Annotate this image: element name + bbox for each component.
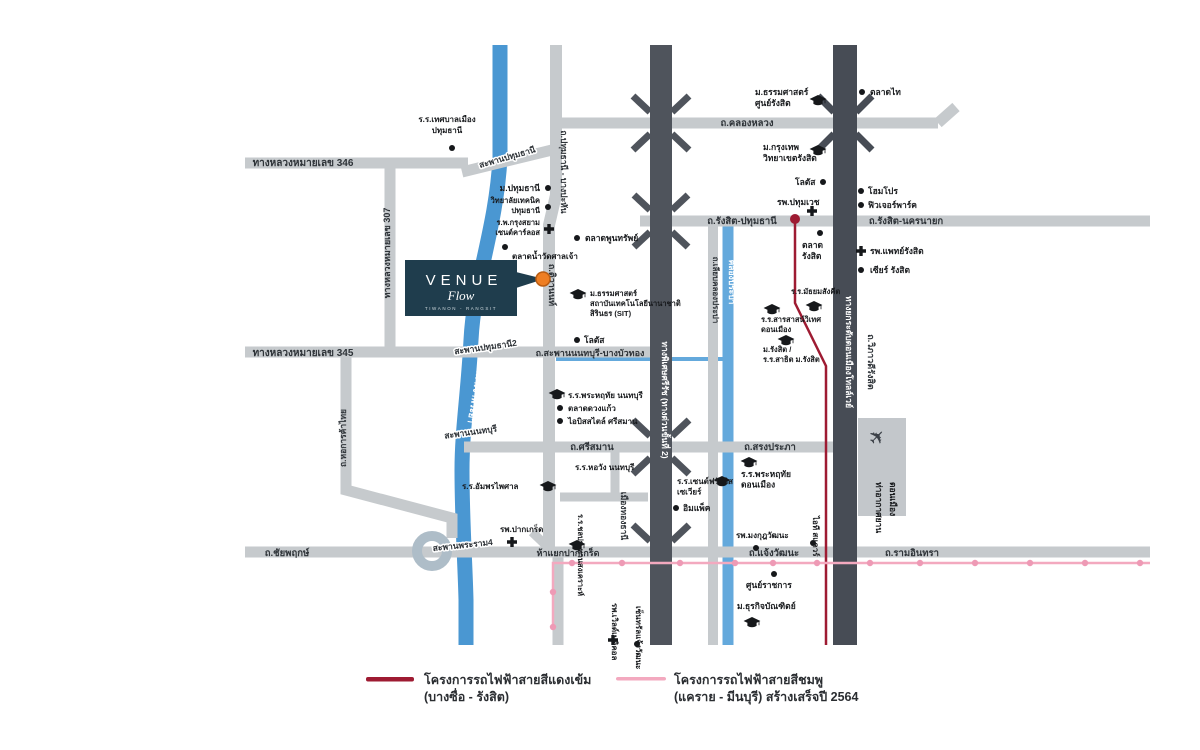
school-cap-icon <box>779 335 794 344</box>
landmark-label: ม.รังสิต / <box>763 345 792 354</box>
pink-line-station-dot <box>550 589 556 595</box>
landmark-label: ร.ร.ชลประทานสงเคราะห์ <box>576 514 585 596</box>
poi-dot-icon <box>817 230 823 236</box>
poi-dot-icon <box>858 267 864 273</box>
road-label: ถ.ติวานนท์ <box>547 264 558 306</box>
pink-line-station-dot <box>1027 560 1033 566</box>
poi-dot-icon <box>634 641 640 647</box>
landmark-label: ม.ธรรมศาสตร์ <box>755 87 809 97</box>
road-label: ถ.ชัยพฤกษ์ <box>265 547 310 559</box>
landmark-label: ปทุมธานี <box>432 125 463 136</box>
pink-line-station-dot <box>677 560 683 566</box>
road-label: คลองประปา <box>727 260 737 305</box>
road-label: ถ.ปทุมธานี - บางปะหัน <box>558 130 569 213</box>
pink-line-station-dot <box>867 560 873 566</box>
landmark-label: ร.ร.หอวัง นนทบุรี <box>575 462 635 473</box>
pink-line-station-dot <box>917 560 923 566</box>
legend: โครงการรถไฟฟ้าสายสีแดงเข้ม (บางซื่อ - รั… <box>366 672 858 705</box>
landmark-label: ตลาดน้ำวัดศาลเจ้า <box>512 250 578 261</box>
landmark-label: เซียร์ รังสิต <box>870 265 910 275</box>
landmark-label: ไอที สแควร์ <box>811 515 821 557</box>
landmark-label: โลตัส <box>794 177 816 187</box>
pink-line-station-dot <box>770 560 776 566</box>
pink-line-station-dot <box>1137 560 1143 566</box>
road-label: ถ.คลองหลวง <box>721 118 774 129</box>
poi-dot-icon <box>820 179 826 185</box>
landmark-label: ไอบิสสไตล์ ศรีสมาน <box>567 416 638 426</box>
pink-line-station-dot <box>550 624 556 630</box>
landmark-label: วิทยาเขตรังสิต <box>763 153 817 163</box>
landmark-label: ร.ร.เทศบาลเมือง <box>418 114 475 124</box>
landmark-label: โลตัส <box>583 335 605 345</box>
poi-dot-icon <box>557 418 563 424</box>
road-label: ถ.วิภาวดีรังสิต <box>866 334 876 390</box>
poi-dot-icon <box>557 405 563 411</box>
legend-pink-line-sublabel: (แคราย - มีนบุรี) สร้างเสร็จปี 2564 <box>674 689 858 705</box>
legend-pink-line-swatch <box>616 677 666 681</box>
poi-dot-icon <box>858 188 864 194</box>
landmark-label: ร.ร.อัมพรไพศาล <box>462 481 519 491</box>
road-label: ทางหลวงหมายเลข 307 <box>382 208 392 299</box>
landmark-label: วิทยาลัยเทคนิค <box>490 196 540 205</box>
landmark-label: ม.ธรรมศาสตร์ <box>590 289 638 298</box>
landmark-label: ม.ธุรกิจบัณฑิตย์ <box>737 601 796 612</box>
project-location-pin <box>536 272 550 286</box>
landmark-label: ศูนย์ราชการ <box>746 580 792 591</box>
poi-dot-icon <box>673 505 679 511</box>
landmark-label: ปทุมธานี <box>511 206 540 215</box>
pink-line-station-dot <box>814 560 820 566</box>
landmark-label: ม.ปทุมธานี <box>500 183 541 194</box>
poi-dot-icon <box>545 204 551 210</box>
project-subname: Flow <box>447 288 475 303</box>
road-label: ทางพิเศษศรีรัช (ทางด่วนขั้นที่ 2) <box>660 341 672 458</box>
project-marker: VENUE Flow TIWANON - RANGSIT <box>405 260 550 316</box>
landmark-label: ตลาดพูนทรัพย์ <box>585 233 638 244</box>
school-cap-icon <box>742 457 757 466</box>
landmark-label: เซ็นทรัลแจ้งวัฒนะ <box>634 606 645 669</box>
landmark-label: ท่าอากาศยาน <box>874 482 884 533</box>
pink-line-station-dot <box>972 560 978 566</box>
poi-dot-icon <box>574 235 580 241</box>
landmark-label: ร.ร.สาธิต ม.รังสิต <box>763 355 820 364</box>
road-label: ถ.รังสิต-ปทุมธานี <box>707 215 777 227</box>
landmark-label: รพ.แพทย์รังสิต <box>870 246 924 256</box>
landmark-label: โฮมโปร <box>867 186 898 196</box>
school-cap-icon <box>807 301 822 310</box>
hospital-cross-icon <box>856 246 866 256</box>
poi-dot-icon <box>502 244 508 250</box>
poi-dot-icon <box>810 540 816 546</box>
landmark-label: ร.ร.มัธยมสังคีต <box>791 287 840 296</box>
project-tagline: TIWANON - RANGSIT <box>425 306 497 311</box>
road-label: ทางหลวงหมายเลข 345 <box>253 348 354 359</box>
road-label: ห้าแยกปากเกร็ด <box>537 546 600 558</box>
legend-red-line-swatch <box>366 677 414 682</box>
poi-dot-icon <box>859 89 865 95</box>
landmark-label: ม.กรุงเทพ <box>763 142 799 153</box>
school-cap-icon <box>571 289 586 298</box>
landmark-label: ร.พ.กรุงสยาม <box>497 218 541 227</box>
map-screenshot: ทางหลวงหมายเลข 346สะพานปทุมธานีถ.ปทุมธาน… <box>0 0 1200 750</box>
landmark-label: สิรินธร (SIT) <box>590 309 632 318</box>
landmark-label: ร.ร.พระหฤทัย <box>741 469 791 479</box>
landmark-label: เซนต์คาร์ลอส <box>495 228 540 237</box>
road-khlong-luang-tail <box>938 107 956 123</box>
school-cap-icon <box>745 617 760 626</box>
poi-dot-icon <box>753 545 759 551</box>
landmark-label: ฟิวเจอร์พาร์ค <box>868 200 917 210</box>
project-name: VENUE <box>426 272 503 289</box>
pink-line-station-dot <box>1082 560 1088 566</box>
landmark-label: สถาบันเทคโนโลยีนานาชาติ <box>590 298 681 308</box>
red-line-terminus-dot <box>790 214 800 224</box>
school-cap-icon <box>765 304 780 313</box>
landmark-label: ร.ร.พระหฤทัย นนทบุรี <box>568 390 643 401</box>
landmark-label: รพ.เวิลด์เมดิคอล <box>610 603 620 660</box>
landmark-label: เซเวียร์ <box>677 487 702 497</box>
red-line-route <box>795 220 826 645</box>
road-label: ถ.ศรีสมาน <box>570 441 614 453</box>
landmark-label: ศูนย์รังสิต <box>755 98 791 109</box>
landmark-label: ดอนเมือง <box>741 480 775 490</box>
location-map: ทางหลวงหมายเลข 346สะพานปทุมธานีถ.ปทุมธาน… <box>0 0 1200 750</box>
legend-pink-line-label: โครงการรถไฟฟ้าสายสีชมพู <box>673 672 823 688</box>
pink-line-station-dot <box>619 560 625 566</box>
landmark-label: รพ.ปากเกร็ด <box>500 523 543 534</box>
road-hokarnkha-thai <box>346 352 452 538</box>
poi-dot-icon <box>858 202 864 208</box>
landmark-label: อิมแพ็ค <box>683 501 711 513</box>
road-label: สะพานนนทบุรี <box>444 423 499 441</box>
poi-dot-icon <box>771 571 777 577</box>
landmark-label: ดอนเมือง <box>888 482 898 516</box>
landmark-label: ดอนเมือง <box>761 325 792 334</box>
pink-line-station-dot <box>732 560 738 566</box>
hospital-cross-icon <box>807 206 817 216</box>
road-label: ถ.เลียบคลองประปา <box>711 257 721 324</box>
road-label: ถ.สะพานนนทบุรี-บางบัวทอง <box>536 348 645 359</box>
hospital-cross-icon <box>507 537 517 547</box>
road-label: เมืองทองธานี <box>619 492 629 541</box>
landmark-label: ร.ร.สารสาสน์วิเทศ <box>761 315 821 324</box>
landmark-label: ตลาดดวงแก้ว <box>568 403 616 413</box>
poi-dot-icon <box>574 337 580 343</box>
road-label: ถ.รังสิต-นครนายก <box>869 216 944 227</box>
landmark-label: ตลาดไท <box>870 87 901 97</box>
landmark-label: รังสิต <box>802 251 822 261</box>
legend-red-line-sublabel: (บางซื่อ - รังสิต) <box>424 688 509 704</box>
landmark-label: ตลาด <box>802 240 824 250</box>
road-label: ถ.รามอินทรา <box>885 548 939 559</box>
roads-layer <box>245 45 1150 645</box>
poi-dot-icon <box>545 185 551 191</box>
road-label: ถ.หอการค้าไทย <box>338 409 348 467</box>
legend-red-line-label: โครงการรถไฟฟ้าสายสีแดงเข้ม <box>423 672 591 687</box>
road-label: ถ.สรงประภา <box>744 441 796 453</box>
road-label: ทางยกระดับดอนเมืองโทลล์เวย์ <box>844 296 854 408</box>
poi-dot-icon <box>449 145 455 151</box>
landmark-label: รพ.มงกุฎวัฒนะ <box>736 531 789 541</box>
road-label: ทางหลวงหมายเลข 346 <box>253 158 354 169</box>
pink-line-station-dot <box>569 560 575 566</box>
